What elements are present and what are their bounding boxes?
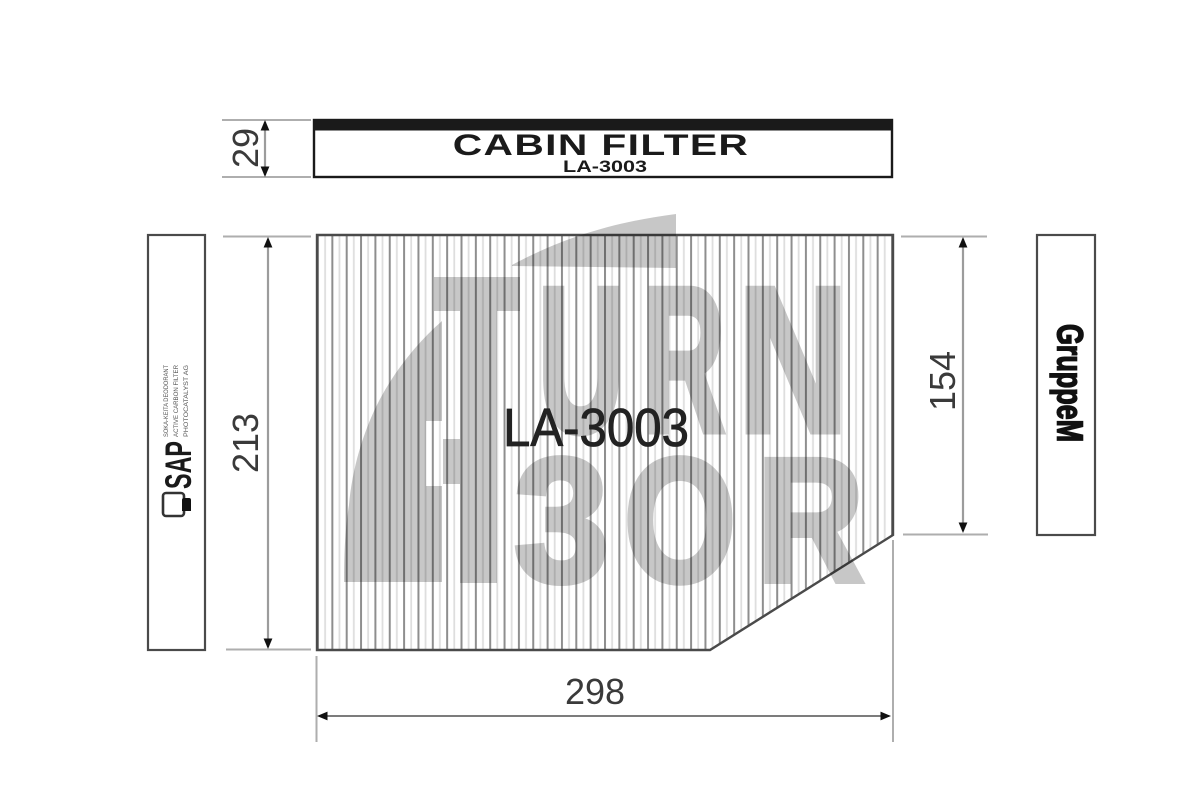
svg-text:R: R: [757, 423, 864, 619]
svg-text:SOKA-KEITA DEODORANT: SOKA-KEITA DEODORANT: [163, 365, 170, 437]
svg-text:213: 213: [225, 413, 266, 473]
svg-text:PHOTOCATALYST AG: PHOTOCATALYST AG: [183, 365, 190, 437]
svg-text:29: 29: [225, 128, 266, 168]
svg-text:154: 154: [922, 351, 963, 411]
svg-text:GruppeM: GruppeM: [1050, 324, 1091, 442]
svg-text:LA-3003: LA-3003: [503, 398, 689, 458]
svg-text:SAP: SAP: [158, 441, 199, 489]
svg-text:LA-3003: LA-3003: [563, 157, 647, 176]
svg-text:ACTIVE CARBON FILTER: ACTIVE CARBON FILTER: [173, 365, 180, 437]
svg-text:298: 298: [565, 671, 625, 712]
